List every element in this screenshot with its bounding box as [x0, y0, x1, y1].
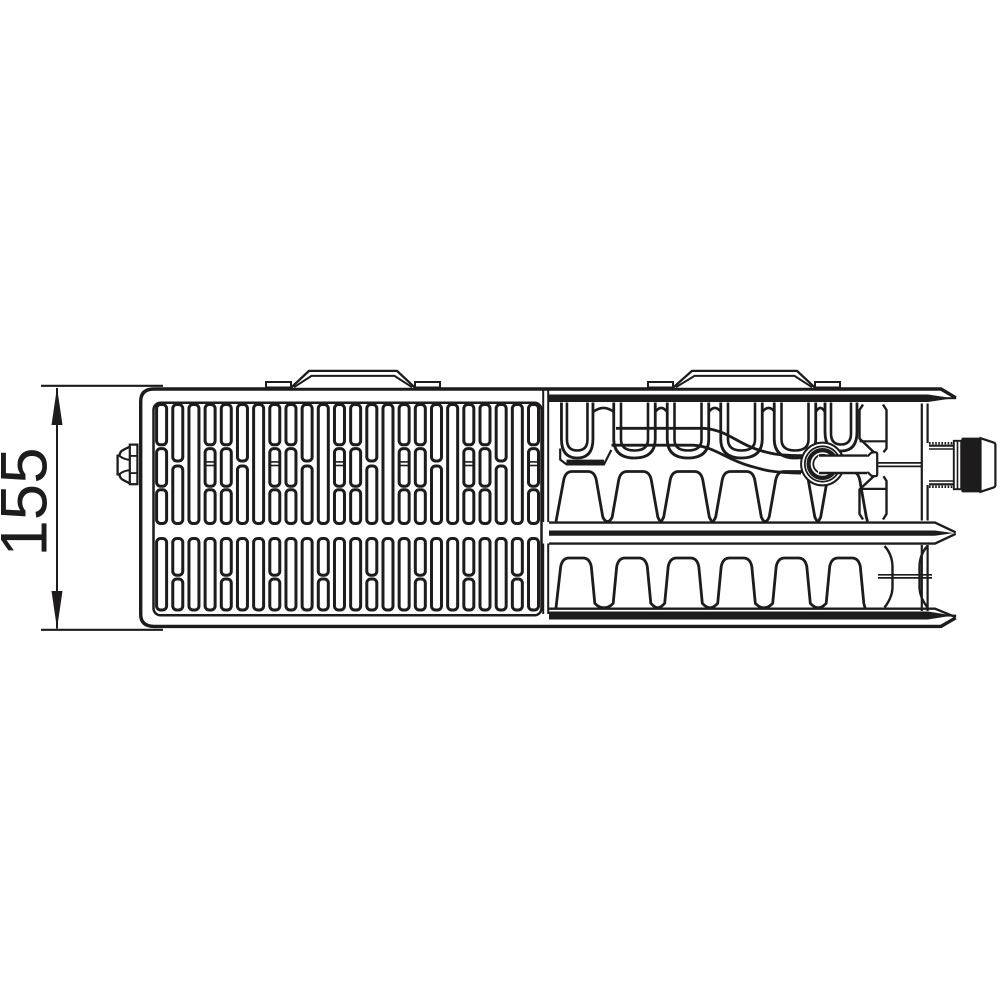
svg-text:155: 155 — [0, 447, 61, 556]
